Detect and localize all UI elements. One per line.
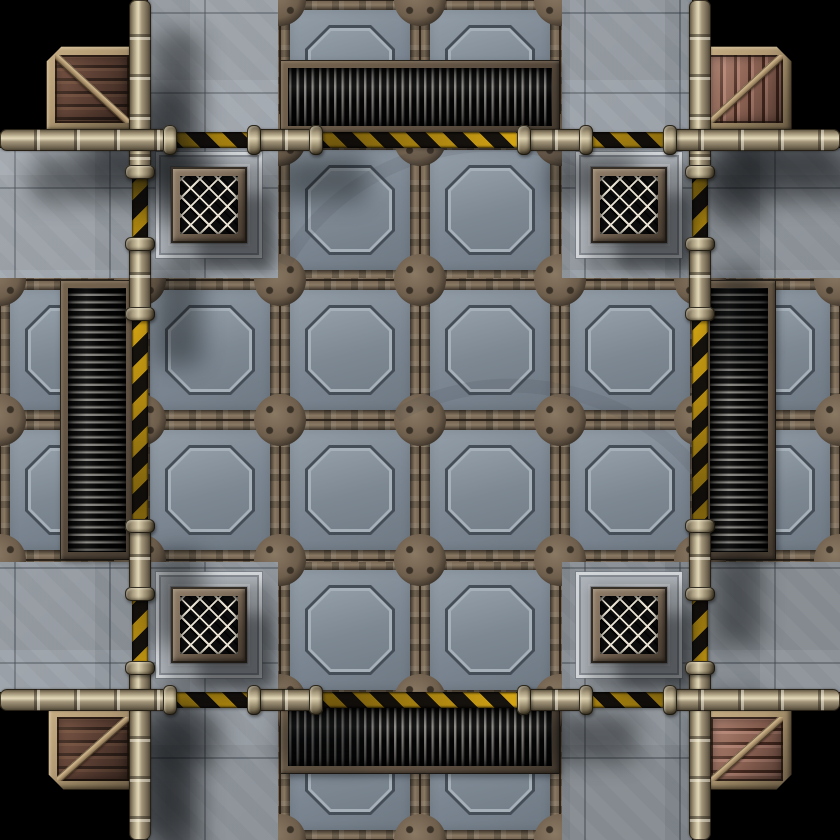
- girder-left-wall-top: [129, 0, 151, 178]
- girder-bottom-wall-left: [0, 689, 176, 711]
- girder-end-cap: [685, 307, 715, 321]
- girder-right-wall-top: [689, 0, 711, 178]
- crate-planks: [57, 717, 129, 781]
- girder-bottom-wall-right: [664, 689, 840, 711]
- girder-end-cap: [125, 237, 155, 251]
- crate-diagonal-brace: [57, 717, 129, 781]
- girder-end-cap: [663, 125, 677, 155]
- crate-diagonal-brace: [709, 55, 783, 123]
- floor-panel: [150, 430, 270, 550]
- crate-planks: [711, 717, 783, 781]
- girder-top-wall-right: [664, 129, 840, 151]
- girder-end-cap: [125, 307, 155, 321]
- girder-end-cap: [247, 125, 261, 155]
- girder-end-cap: [125, 587, 155, 601]
- girder-end-cap: [685, 519, 715, 533]
- grate-bottom-right: [591, 587, 667, 663]
- cast-shadow: [280, 154, 367, 202]
- crate-top-left: [46, 46, 138, 132]
- girder-end-cap: [247, 685, 261, 715]
- girder-end-cap: [163, 125, 177, 155]
- crate-planks: [55, 55, 129, 123]
- grate-bottom-left: [171, 587, 247, 663]
- cast-shadow: [154, 270, 202, 365]
- girder-end-cap: [125, 661, 155, 675]
- vent-slats-grill: [68, 288, 126, 552]
- girder-end-cap: [685, 237, 715, 251]
- cast-shadow: [714, 552, 762, 645]
- crate-bottom-right: [702, 708, 792, 790]
- grate-mesh-lattice: [180, 596, 238, 654]
- grate-mesh-lattice: [600, 596, 658, 654]
- girder-end-cap: [125, 519, 155, 533]
- cast-shadow: [714, 270, 762, 365]
- grate-mesh-lattice: [600, 176, 658, 234]
- girder-top-wall-left: [0, 129, 176, 151]
- grate-top-left: [171, 167, 247, 243]
- panel-inset-field: [171, 451, 249, 529]
- grate-top-right: [591, 167, 667, 243]
- crate-diagonal-brace: [55, 55, 129, 123]
- girder-end-cap: [579, 125, 593, 155]
- vent-left: [60, 280, 134, 560]
- girder-end-cap: [685, 165, 715, 179]
- girder-end-cap: [517, 685, 531, 715]
- girder-end-cap: [125, 165, 155, 179]
- battlemap-canvas: [0, 0, 840, 840]
- girder-end-cap: [685, 661, 715, 675]
- girder-end-cap: [685, 587, 715, 601]
- crate-planks: [709, 55, 783, 123]
- vent-slats-grill: [288, 68, 552, 126]
- crate-bottom-left: [48, 708, 138, 790]
- girder-end-cap: [579, 685, 593, 715]
- vent-top: [280, 60, 560, 134]
- cast-shadow: [550, 714, 637, 762]
- girder-end-cap: [309, 685, 323, 715]
- cast-shadow: [280, 714, 367, 762]
- crate-diagonal-brace: [711, 717, 783, 781]
- girder-end-cap: [517, 125, 531, 155]
- girder-end-cap: [309, 125, 323, 155]
- grate-mesh-lattice: [180, 176, 238, 234]
- girder-end-cap: [663, 685, 677, 715]
- girder-end-cap: [163, 685, 177, 715]
- crate-top-right: [700, 46, 792, 132]
